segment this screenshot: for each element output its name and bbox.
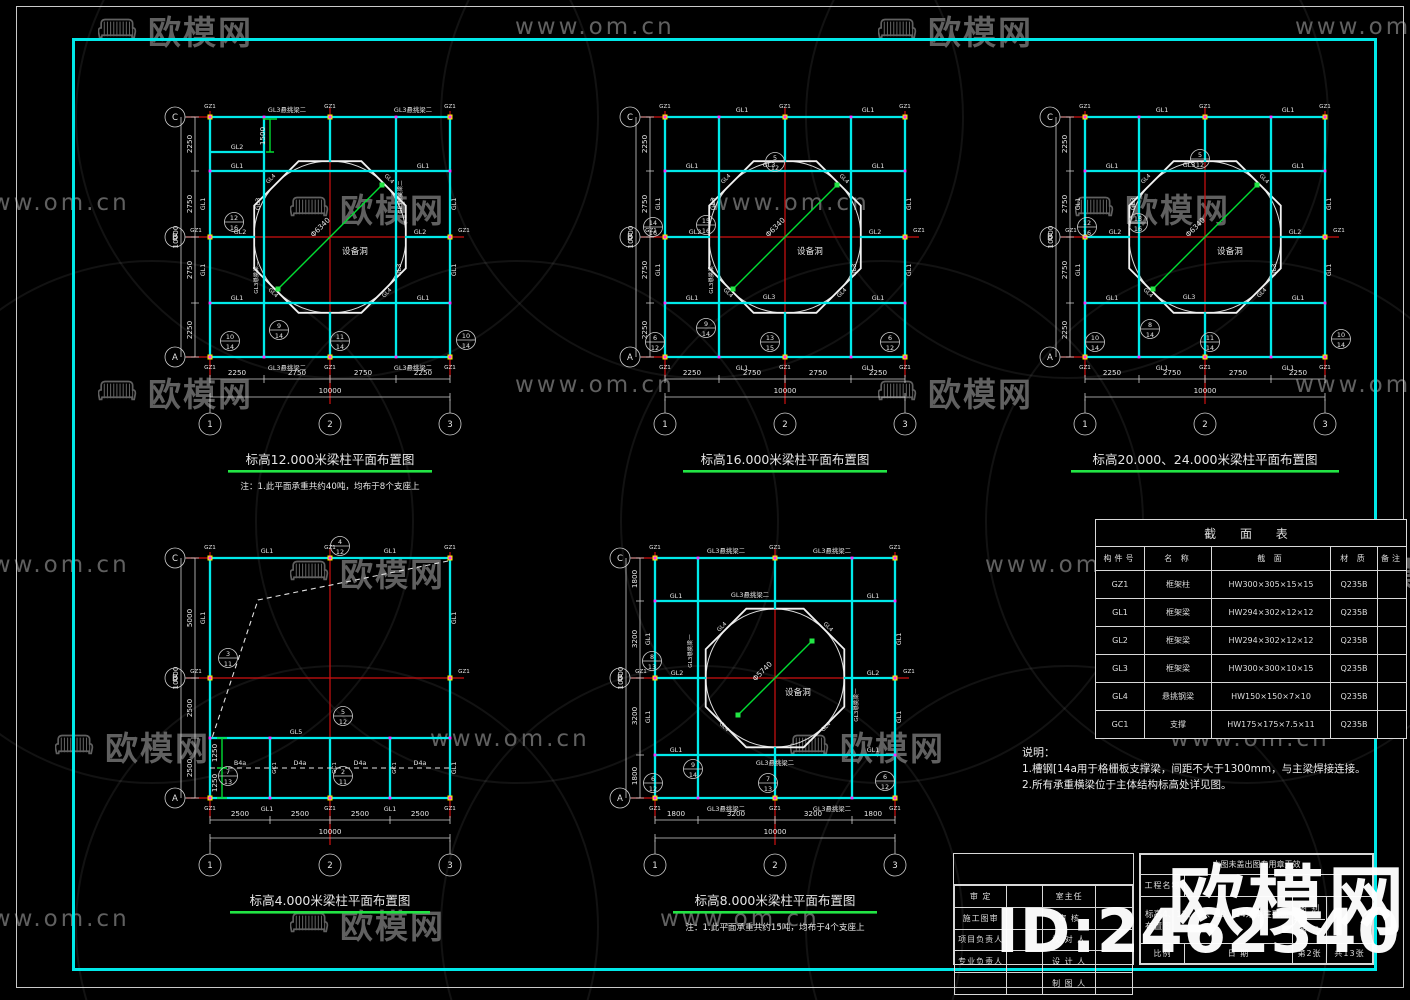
svg-text:2750: 2750	[1060, 260, 1069, 279]
col-header: 构件号	[1096, 547, 1145, 571]
svg-text:13: 13	[766, 334, 774, 342]
svg-text:11: 11	[336, 333, 344, 341]
svg-text:C: C	[172, 554, 178, 564]
table-row: GL3框架梁HW300×300×10×15Q235B	[1096, 655, 1407, 683]
svg-text:10000: 10000	[319, 827, 342, 836]
svg-text:GL3: GL3	[1183, 293, 1196, 301]
svg-text:2: 2	[341, 768, 345, 776]
detail-callout: 713	[219, 767, 238, 787]
svg-text:9: 9	[704, 320, 708, 328]
svg-text:GL1: GL1	[895, 711, 903, 724]
svg-text:GZ1: GZ1	[204, 806, 216, 812]
svg-text:12: 12	[1083, 219, 1091, 227]
svg-text:3200: 3200	[630, 629, 639, 648]
col-header: 截 面	[1212, 547, 1331, 571]
svg-text:2250: 2250	[683, 368, 702, 377]
svg-text:GL1: GL1	[895, 633, 903, 646]
detail-callout: 612	[881, 333, 900, 353]
svg-text:2250: 2250	[228, 368, 247, 377]
svg-text:GZ1: GZ1	[1079, 104, 1091, 110]
svg-text:GL1: GL1	[867, 592, 880, 600]
svg-text:GL1: GL1	[1074, 198, 1082, 211]
svg-text:5: 5	[773, 154, 777, 162]
plan-title-block: 标高20.000、24.000米梁柱平面布置图	[1071, 452, 1339, 473]
svg-text:1250: 1250	[210, 773, 219, 792]
svg-text:12: 12	[881, 783, 889, 791]
col-header: 名 称	[1145, 547, 1212, 571]
svg-text:GL1: GL1	[736, 364, 749, 372]
svg-text:GL1: GL1	[1325, 264, 1333, 277]
svg-text:2500: 2500	[351, 809, 370, 818]
svg-text:设备洞: 设备洞	[785, 686, 811, 698]
svg-text:2500: 2500	[231, 809, 250, 818]
svg-text:13: 13	[648, 663, 656, 671]
svg-text:A: A	[617, 794, 623, 804]
svg-text:3: 3	[902, 420, 907, 430]
svg-text:GL3悬挑梁二: GL3悬挑梁二	[756, 758, 795, 767]
svg-text:GL1: GL1	[862, 364, 875, 372]
plan-20-24m: 2250 2750 2750 2250 10000 2250 2750 2750…	[975, 92, 1395, 522]
svg-text:GZ1: GZ1	[903, 669, 915, 675]
detail-callout: 1516	[697, 216, 716, 236]
svg-text:GL3: GL3	[763, 293, 776, 301]
svg-text:15: 15	[1134, 215, 1142, 223]
svg-text:12: 12	[230, 214, 238, 222]
svg-text:GL1: GL1	[686, 294, 699, 302]
svg-text:14: 14	[1337, 341, 1345, 349]
svg-text:GL3悬挑梁二: GL3悬挑梁二	[268, 105, 307, 114]
svg-text:GL1: GL1	[1106, 294, 1119, 302]
detail-callout: 1014	[457, 331, 476, 351]
beam-labels: GL1 GL1 GL1 GL1 GL5 GL1 GL1 GL1 GC1 GC1 …	[199, 547, 458, 813]
col-axis-bubbles: 1 2 3	[654, 399, 916, 435]
title-underline	[683, 470, 887, 473]
svg-text:14: 14	[462, 342, 470, 350]
detail-callout: 612	[646, 333, 665, 353]
note-line: 1.槽钢[14a用于格栅板支撑梁，间距不大于1300mm，与主梁焊接连接。	[1022, 761, 1366, 777]
svg-text:10: 10	[1337, 331, 1345, 339]
plan-title: 标高12.000米梁柱平面布置图	[246, 452, 415, 467]
svg-text:16: 16	[1083, 229, 1091, 237]
svg-text:2250: 2250	[1060, 134, 1069, 153]
svg-text:3: 3	[447, 861, 452, 871]
svg-text:10000: 10000	[1194, 386, 1217, 395]
detail-callout: 1014	[1332, 330, 1351, 350]
svg-text:GL3悬挑梁二: GL3悬挑梁二	[268, 363, 307, 372]
svg-text:2500: 2500	[411, 809, 430, 818]
svg-text:2750: 2750	[809, 368, 828, 377]
svg-text:GC1: GC1	[392, 762, 398, 774]
svg-text:2750: 2750	[185, 260, 194, 279]
svg-text:3: 3	[892, 861, 897, 871]
svg-text:2: 2	[782, 420, 787, 430]
svg-text:3: 3	[447, 420, 452, 430]
svg-text:GL1: GL1	[231, 294, 244, 302]
svg-text:16: 16	[1134, 225, 1142, 233]
svg-text:3: 3	[226, 650, 230, 658]
svg-text:2750: 2750	[354, 368, 373, 377]
svg-text:GL1: GL1	[654, 264, 662, 277]
svg-text:GL2: GL2	[867, 669, 880, 677]
svg-text:GL1: GL1	[1292, 162, 1305, 170]
svg-text:Φ6340: Φ6340	[1184, 215, 1208, 239]
drawing-sheet: 欧模网 www.om.cn 欧模网 www.om.cn www.om.cn 欧模…	[0, 0, 1410, 1000]
col-axis-bubbles: 1 2 3	[199, 399, 461, 435]
detail-callout: 412	[331, 537, 350, 557]
svg-text:C: C	[172, 113, 178, 123]
svg-text:GL1: GL1	[1074, 264, 1082, 277]
big-watermark-id: ID:2462340	[996, 896, 1401, 967]
plan-4m: 2500 2500 2500 2500 10000 5000 2500 2500…	[100, 533, 520, 963]
svg-text:GL1: GL1	[1156, 364, 1169, 372]
svg-text:GL3悬挑梁一: GL3悬挑梁一	[686, 634, 694, 668]
svg-text:6: 6	[653, 334, 657, 342]
svg-text:GZ1: GZ1	[659, 104, 671, 110]
svg-text:2250: 2250	[1060, 320, 1069, 339]
svg-text:GZ1: GZ1	[1319, 365, 1331, 371]
table-row: GZ1框架柱HW300×305×15×15Q235B	[1096, 571, 1407, 599]
svg-text:D4a: D4a	[414, 759, 427, 767]
svg-text:GL1: GL1	[905, 264, 913, 277]
detail-callout: 211	[334, 767, 353, 787]
svg-text:2750: 2750	[185, 194, 194, 213]
svg-text:GL3: GL3	[395, 264, 403, 277]
svg-text:1: 1	[652, 861, 657, 871]
svg-text:GZ1: GZ1	[324, 365, 336, 371]
svg-text:2250: 2250	[185, 320, 194, 339]
svg-text:2750: 2750	[1060, 194, 1069, 213]
plan-title: 标高8.000米梁柱平面布置图	[695, 893, 856, 908]
detail-callout: 1014	[221, 332, 240, 352]
detail-callout: 1416	[644, 218, 663, 238]
svg-text:GL3悬挑梁一: GL3悬挑梁一	[852, 688, 860, 722]
title-underline	[228, 470, 432, 473]
svg-text:5000: 5000	[185, 608, 194, 627]
table-row: GL4悬挑钢梁HW150×150×7×10Q235B	[1096, 683, 1407, 711]
plan-title-block: 标高4.000米梁柱平面布置图	[230, 893, 430, 914]
svg-text:GL2: GL2	[414, 228, 427, 236]
svg-text:GZ1: GZ1	[779, 365, 791, 371]
svg-text:14: 14	[702, 330, 710, 338]
axis-lines-red	[186, 549, 464, 845]
svg-text:GL3悬挑梁二: GL3悬挑梁二	[707, 804, 746, 813]
svg-text:C: C	[627, 113, 633, 123]
detail-callout: 914	[270, 321, 289, 341]
svg-text:13: 13	[224, 778, 232, 786]
svg-text:14: 14	[649, 219, 657, 227]
svg-text:8: 8	[650, 653, 654, 661]
detail-callouts: 412 311 512 713 211	[219, 537, 353, 787]
plan-title: 标高16.000米梁柱平面布置图	[701, 452, 870, 467]
svg-text:10000: 10000	[774, 386, 797, 395]
svg-text:GL1: GL1	[1282, 364, 1295, 372]
svg-text:GL3: GL3	[1270, 264, 1278, 277]
plan-note: 注：1.此平面承重共约40吨，均布于8个支座上	[240, 480, 420, 492]
svg-text:1800: 1800	[667, 809, 686, 818]
svg-text:1: 1	[1082, 420, 1087, 430]
detail-callout: 1216	[1078, 218, 1097, 238]
col-axis-bubbles: 1 2 3	[1074, 399, 1336, 435]
svg-text:GL1: GL1	[417, 162, 430, 170]
section-table-title: 截 面 表	[1096, 520, 1407, 547]
svg-text:GL4: GL4	[1256, 287, 1268, 299]
detail-callout: 612	[644, 774, 663, 794]
svg-text:GL1: GL1	[1106, 162, 1119, 170]
detail-callout: 914	[697, 319, 716, 339]
svg-text:GL5: GL5	[290, 728, 303, 736]
svg-text:2500: 2500	[185, 698, 194, 717]
svg-text:12: 12	[1196, 161, 1204, 169]
svg-text:GL3悬挑梁二: GL3悬挑梁二	[252, 260, 260, 294]
svg-text:GZ1: GZ1	[769, 806, 781, 812]
svg-text:7: 7	[226, 768, 230, 776]
col-axis-bubbles: 1 2 3	[199, 840, 461, 876]
table-row: GC1支撑HW175×175×7.5×11Q235B	[1096, 711, 1407, 739]
svg-text:GZ1: GZ1	[1319, 104, 1331, 110]
svg-text:GZ1: GZ1	[1333, 228, 1345, 234]
col-header: 备注	[1378, 547, 1407, 571]
plan-title-block: 标高8.000米梁柱平面布置图 注：1.此平面承重共约15吨，均布于4个支座上	[673, 893, 877, 933]
svg-text:GL2: GL2	[1109, 228, 1122, 236]
svg-text:GC1: GC1	[272, 762, 278, 774]
svg-text:12: 12	[886, 344, 894, 352]
svg-text:GC1: GC1	[332, 762, 338, 774]
svg-text:11: 11	[224, 660, 232, 668]
svg-text:GZ1: GZ1	[204, 365, 216, 371]
detail-callout: 914	[684, 760, 703, 780]
svg-text:GZ1: GZ1	[204, 104, 216, 110]
detail-callout: 713	[759, 774, 778, 794]
svg-text:GL1: GL1	[261, 805, 274, 813]
svg-text:15: 15	[766, 344, 774, 352]
svg-text:3200: 3200	[630, 706, 639, 725]
svg-text:GZ1: GZ1	[324, 806, 336, 812]
svg-text:C: C	[617, 554, 623, 564]
svg-text:6: 6	[651, 775, 655, 783]
svg-text:2: 2	[772, 861, 777, 871]
svg-text:11: 11	[339, 778, 347, 786]
svg-text:GL1: GL1	[872, 162, 885, 170]
detail-callout: 512	[766, 153, 785, 173]
svg-text:6: 6	[888, 334, 892, 342]
title-underline	[1071, 470, 1339, 473]
detail-callout: 612	[876, 772, 895, 792]
svg-text:GL1: GL1	[450, 264, 458, 277]
svg-text:1: 1	[207, 861, 212, 871]
col-axis-bubbles: 1 2 3	[644, 840, 906, 876]
svg-text:GZ1: GZ1	[899, 104, 911, 110]
svg-text:10000: 10000	[319, 386, 342, 395]
detail-callout: 814	[1141, 320, 1160, 340]
detail-callout: 512	[1191, 150, 1210, 170]
svg-text:2750: 2750	[1229, 368, 1248, 377]
detail-callout: 512	[334, 707, 353, 727]
table-row: GL1框架梁HW294×302×12×12Q235B	[1096, 599, 1407, 627]
svg-text:14: 14	[275, 332, 283, 340]
svg-text:GZ1: GZ1	[779, 104, 791, 110]
svg-text:GL2: GL2	[671, 669, 684, 677]
title-underline	[673, 911, 877, 914]
svg-text:B4a: B4a	[234, 759, 246, 767]
svg-text:B: B	[172, 674, 178, 684]
svg-text:GL1: GL1	[1156, 106, 1169, 114]
notes-title: 说明：	[1022, 744, 1366, 761]
table-row: GL2框架梁HW294×302×12×12Q235B	[1096, 627, 1407, 655]
svg-text:GZ1: GZ1	[899, 365, 911, 371]
svg-text:2500: 2500	[291, 809, 310, 818]
svg-text:GZ1: GZ1	[324, 104, 336, 110]
svg-text:GL3: GL3	[850, 264, 858, 277]
svg-text:10000: 10000	[764, 827, 787, 836]
svg-text:5: 5	[1198, 151, 1202, 159]
svg-text:1800: 1800	[630, 569, 639, 588]
svg-text:GL1: GL1	[670, 746, 683, 754]
svg-text:设备洞: 设备洞	[342, 245, 368, 257]
svg-text:GL1: GL1	[644, 633, 652, 646]
detail-callout: 1516	[1129, 214, 1148, 234]
svg-text:14: 14	[336, 343, 344, 351]
svg-text:GZ1: GZ1	[769, 545, 781, 551]
svg-text:GL1: GL1	[384, 805, 397, 813]
svg-text:GZ1: GZ1	[190, 228, 202, 234]
svg-text:GL3悬挑梁二: GL3悬挑梁二	[394, 105, 433, 114]
detail-callout: 1216	[225, 213, 244, 233]
svg-text:10: 10	[1091, 334, 1099, 342]
svg-text:14: 14	[1146, 331, 1154, 339]
svg-text:10: 10	[462, 332, 470, 340]
svg-text:A: A	[1047, 353, 1053, 363]
svg-text:GL3悬挑梁二: GL3悬挑梁二	[813, 546, 852, 555]
svg-text:GL2: GL2	[1289, 228, 1302, 236]
svg-text:D4a: D4a	[294, 759, 307, 767]
svg-text:GL1: GL1	[450, 198, 458, 211]
svg-text:GL3悬挑梁二: GL3悬挑梁二	[731, 590, 770, 599]
plan-title-block: 标高12.000米梁柱平面布置图 注：1.此平面承重共约40吨，均布于8个支座上	[228, 452, 432, 492]
svg-text:12: 12	[339, 718, 347, 726]
svg-text:5: 5	[341, 708, 345, 716]
svg-text:GZ1: GZ1	[444, 365, 456, 371]
svg-text:GL1: GL1	[867, 746, 880, 754]
svg-text:GL3: GL3	[254, 198, 262, 211]
svg-text:GL1: GL1	[644, 711, 652, 724]
svg-text:12: 12	[649, 785, 657, 793]
svg-text:3: 3	[1322, 420, 1327, 430]
svg-text:GL1: GL1	[450, 762, 458, 775]
plan-16m: 2250 2750 2750 2250 10000 2250 2750 2750…	[555, 92, 975, 522]
axis-lines-red	[641, 108, 919, 404]
svg-text:A: A	[172, 794, 178, 804]
svg-text:GZ1: GZ1	[190, 669, 202, 675]
svg-text:12: 12	[651, 344, 659, 352]
plan-title: 标高20.000、24.000米梁柱平面布置图	[1093, 452, 1318, 467]
svg-text:1: 1	[662, 420, 667, 430]
svg-text:2250: 2250	[1103, 368, 1122, 377]
detail-callouts: 512 1216 1516 814 1014 1114 1014	[1078, 150, 1351, 353]
svg-text:GL1: GL1	[1282, 106, 1295, 114]
svg-text:GL3悬挑梁二: GL3悬挑梁二	[394, 363, 433, 372]
svg-text:15: 15	[702, 217, 710, 225]
svg-text:GL3: GL3	[1129, 198, 1137, 211]
svg-text:2: 2	[1202, 420, 1207, 430]
svg-text:12: 12	[771, 164, 779, 172]
svg-text:1500: 1500	[258, 126, 267, 145]
svg-text:GL1: GL1	[199, 612, 207, 625]
svg-text:12: 12	[336, 548, 344, 556]
plan-title-block: 标高16.000米梁柱平面布置图	[683, 452, 887, 473]
svg-text:GL1: GL1	[736, 106, 749, 114]
detail-callout: 311	[219, 649, 238, 669]
title-underline	[230, 911, 430, 914]
svg-text:7: 7	[766, 775, 770, 783]
svg-text:2500: 2500	[185, 758, 194, 777]
svg-text:C: C	[1047, 113, 1053, 123]
plan-note: 注：1.此平面承重共约15吨，均布于4个支座上	[685, 921, 865, 933]
svg-text:B: B	[617, 674, 623, 684]
svg-text:GL4: GL4	[820, 721, 832, 733]
svg-text:14: 14	[1206, 344, 1214, 352]
svg-text:GL1: GL1	[231, 162, 244, 170]
svg-text:1800: 1800	[864, 809, 883, 818]
svg-text:GL1: GL1	[670, 592, 683, 600]
svg-text:GZ1: GZ1	[649, 806, 661, 812]
svg-text:GL1: GL1	[261, 547, 274, 555]
svg-text:A: A	[627, 353, 633, 363]
svg-text:GZ1: GZ1	[458, 669, 470, 675]
svg-text:GL1: GL1	[450, 612, 458, 625]
svg-text:Φ6340: Φ6340	[309, 215, 333, 239]
svg-text:GZ1: GZ1	[444, 104, 456, 110]
svg-text:B: B	[172, 233, 178, 243]
svg-text:GL4: GL4	[718, 721, 730, 733]
svg-text:16: 16	[649, 229, 657, 237]
svg-text:2750: 2750	[640, 194, 649, 213]
svg-text:GZ1: GZ1	[444, 806, 456, 812]
svg-text:GZ1: GZ1	[889, 806, 901, 812]
svg-text:GL3悬挑梁一: GL3悬挑梁一	[707, 260, 715, 294]
svg-text:GL1: GL1	[384, 547, 397, 555]
svg-text:9: 9	[691, 761, 695, 769]
svg-text:GL3: GL3	[1183, 161, 1196, 169]
svg-text:16: 16	[702, 227, 710, 235]
general-notes: 说明： 1.槽钢[14a用于格栅板支撑梁，间距不大于1300mm，与主梁焊接连接…	[1022, 744, 1366, 794]
svg-text:GZ1: GZ1	[649, 545, 661, 551]
svg-text:GZ1: GZ1	[1079, 365, 1091, 371]
svg-text:GL1: GL1	[199, 198, 207, 211]
plan-title: 标高4.000米梁柱平面布置图	[250, 893, 411, 908]
svg-text:GL2: GL2	[231, 143, 244, 151]
svg-text:GZ1: GZ1	[204, 545, 216, 551]
svg-text:Φ6340: Φ6340	[764, 215, 788, 239]
svg-text:GZ1: GZ1	[1199, 365, 1211, 371]
svg-text:6: 6	[883, 773, 887, 781]
svg-text:GZ1: GZ1	[635, 669, 647, 675]
svg-text:14: 14	[1091, 344, 1099, 352]
svg-text:GL1: GL1	[872, 294, 885, 302]
svg-text:GL1: GL1	[199, 264, 207, 277]
svg-text:GL4: GL4	[836, 287, 848, 299]
svg-text:4: 4	[338, 538, 342, 546]
svg-text:GL1: GL1	[686, 162, 699, 170]
green-dim: 1500	[258, 119, 277, 152]
svg-text:9: 9	[277, 322, 281, 330]
svg-text:2250: 2250	[185, 134, 194, 153]
svg-text:GL4: GL4	[381, 287, 393, 299]
svg-text:1800: 1800	[630, 766, 639, 785]
svg-text:2: 2	[327, 420, 332, 430]
svg-text:A: A	[172, 353, 178, 363]
svg-text:1: 1	[207, 420, 212, 430]
plan-8m: 1800 3200 3200 1800 10000 1800 3200 3200…	[545, 533, 965, 963]
